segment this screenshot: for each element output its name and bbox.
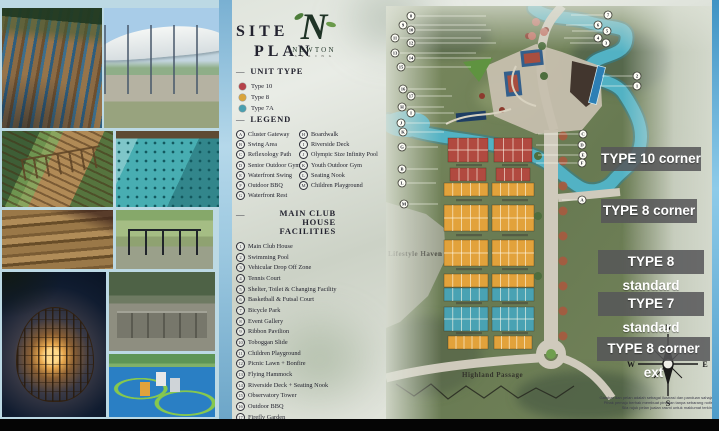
photo-outdoor-gym [116, 210, 213, 269]
facility-item: 9Ribbon Pavilion [236, 327, 336, 338]
facilities-section: — MAIN CLUB HOUSE FACILITIES 1Main Club … [236, 209, 336, 423]
facility-number-circle: 3 [236, 263, 245, 272]
callout-label: G [400, 145, 404, 150]
facility-item: 5Shelter, Toilet & Changing Facility [236, 284, 336, 295]
facility-number-circle: 1 [236, 242, 245, 251]
photo-sunken-lounge [109, 272, 215, 351]
legend-item: IRiverside Deck [299, 139, 391, 149]
callout-label: L [400, 181, 403, 186]
legend-key-circle: M [299, 181, 308, 190]
callout-label: H [400, 105, 404, 110]
callout-label: 14 [409, 56, 414, 61]
legend-key-circle: E [236, 171, 245, 180]
callout-label: 10 [409, 28, 414, 33]
photo-collage-panel [0, 0, 219, 419]
facility-item: 8Event Gallery [236, 316, 336, 327]
legend-column-left: ACluster GatewayBSwing AreaCReflexology … [236, 129, 299, 201]
lot-block-teal [492, 288, 534, 301]
legend-key-circle: D [236, 161, 245, 170]
unit-type-item: Type 8 [239, 92, 303, 103]
legend-item: KYouth Outdoor Gym [299, 160, 391, 170]
unit-type-section: —UNIT TYPE Type 10Type 8Type 7A [236, 66, 303, 114]
facility-number-circle: 13 [236, 370, 245, 379]
unit-type-color-dot [239, 83, 246, 90]
facility-item: 4Tennis Court [236, 273, 336, 284]
facility-label: Tennis Court [248, 275, 281, 282]
unit-type-item: Type 7A [239, 103, 303, 114]
unit-type-label: Type 10 [251, 83, 272, 90]
unit-type-color-dot [239, 94, 246, 101]
type-label: TYPE 7 standard [598, 292, 704, 316]
disclaimer-text: Gambar dan pelan adalah sebagai ilustras… [596, 395, 714, 410]
legend-item: GWaterfront Rest [236, 191, 299, 201]
playground-equipment-shape [156, 372, 166, 386]
legend-key-circle: I [299, 140, 308, 149]
photo-canopy-walkway [104, 8, 220, 128]
facility-item: 16Outdoor BBQ [236, 401, 336, 412]
legend-label: Youth Outdoor Gym [311, 162, 362, 169]
facilities-header-line1: MAIN CLUB HOUSE [264, 209, 336, 227]
legend-label: Riverside Deck [311, 141, 349, 148]
photo-wavy-deck-loungers [2, 8, 102, 128]
callout-label: 11 [393, 36, 398, 41]
facility-label: Basketball & Futsal Court [248, 296, 314, 303]
facility-label: Children Playground [248, 350, 301, 357]
type-label: TYPE 8 corner [601, 199, 697, 223]
facility-number-circle: 9 [236, 327, 245, 336]
legend-label: Swing Area [248, 141, 277, 148]
unit-type-header-label: UNIT TYPE [250, 66, 303, 76]
deck-shadow-shape [2, 74, 102, 128]
facility-number-circle: 7 [236, 306, 245, 315]
legend-section: —LEGEND ACluster GatewayBSwing AreaCRefl… [236, 114, 391, 201]
callout-label: F [581, 161, 584, 166]
unit-type-list: Type 10Type 8Type 7A [236, 81, 303, 114]
gym-frame-shape [128, 229, 202, 256]
legend-key-circle: A [236, 130, 245, 139]
photo-terraced-steps [2, 210, 113, 269]
facility-number-circle: 8 [236, 317, 245, 326]
canopy-posts-shape [104, 25, 220, 95]
bottom-letterbox-bar [0, 419, 719, 431]
facility-item: 2Swimming Pool [236, 252, 336, 263]
collage-divider-band [219, 0, 232, 419]
legend-key-circle: B [236, 140, 245, 149]
cocoon-cage-shape [16, 307, 95, 402]
legend-item: JOlympic Size Infinity Pool [299, 150, 391, 160]
legend-item: DSenior Outdoor Gym [236, 160, 299, 170]
facility-item: 1Main Club House [236, 241, 336, 252]
legend-label: Outdoor BBQ [248, 182, 283, 189]
type-label: TYPE 8 standard [598, 250, 704, 274]
callout-label: M [402, 202, 407, 207]
legend-key-circle: L [299, 171, 308, 180]
facility-number-circle: 15 [236, 391, 245, 400]
disclaimer-line: Sila rujuk pelan jualan rasmi untuk makl… [596, 405, 714, 410]
legend-label: Olympic Size Infinity Pool [311, 151, 378, 158]
legend-key-circle: G [236, 191, 245, 200]
facility-number-circle: 5 [236, 285, 245, 294]
legend-item: EWaterfront Swing [236, 170, 299, 180]
facility-label: Shelter, Toilet & Changing Facility [248, 286, 337, 293]
facility-number-circle: 16 [236, 402, 245, 411]
unit-type-label: Type 7A [251, 105, 274, 112]
dash-decoration: — [236, 209, 245, 236]
fog-overlay-left [386, 6, 442, 420]
facility-item: 13Flying Hammock [236, 369, 336, 380]
legend-item: LSeating Nook [299, 170, 391, 180]
facility-label: Vehicular Drop Off Zone [248, 264, 311, 271]
legend-item: FOutdoor BBQ [236, 180, 299, 190]
legend-item: HBoardwalk [299, 129, 391, 139]
callout-label: 13 [393, 51, 398, 56]
facilities-header: MAIN CLUB HOUSE FACILITIES [264, 209, 336, 236]
facility-item: 7Bicycle Park [236, 305, 336, 316]
facility-label: Riverside Deck + Seating Nook [248, 382, 328, 389]
tree-shadow-shape [2, 210, 113, 269]
legend-label: Waterfront Swing [248, 172, 292, 179]
photo-reflexology-path [116, 131, 220, 207]
facility-label: Event Gallery [248, 318, 283, 325]
highland-passage-label: Highland Passage [462, 371, 523, 379]
roundabout-center [546, 349, 556, 359]
legend-item: MChildren Playground [299, 180, 391, 190]
legend-item: BSwing Area [236, 139, 299, 149]
legend-label: Senior Outdoor Gym [248, 162, 300, 169]
legend-columns: ACluster GatewayBSwing AreaCReflexology … [236, 129, 391, 201]
lot-block-yellow [492, 274, 534, 287]
lounge-bench-shape [117, 311, 206, 338]
dash-decoration: — [236, 66, 245, 76]
facility-label: Observatory Tower [248, 392, 297, 399]
callout-label: 16 [401, 87, 406, 92]
facility-item: 3Vehicular Drop Off Zone [236, 262, 336, 273]
facility-number-circle: 12 [236, 359, 245, 368]
facility-number-circle: 10 [236, 338, 245, 347]
photo-cocoon-pavilion-night [2, 272, 106, 417]
type-label: TYPE 8 corner ext [597, 337, 710, 361]
legend-key-circle: J [299, 150, 308, 159]
facility-item: 12Picnic Lawn + Bonfire [236, 359, 336, 370]
lot-block-teal [444, 288, 488, 301]
facility-label: Bicycle Park [248, 307, 280, 314]
callout-label: K [401, 130, 405, 135]
facility-label: Swimming Pool [248, 254, 289, 261]
callout-label: E [581, 153, 584, 158]
legend-label: Seating Nook [311, 172, 345, 179]
facility-item: 11Children Playground [236, 348, 336, 359]
lot-block-yellow [448, 336, 488, 349]
callout-label: I [410, 111, 412, 116]
legend-item: CReflexology Path [236, 150, 299, 160]
legend-key-circle: K [299, 161, 308, 170]
unit-type-color-dot [239, 105, 246, 112]
unit-type-header: —UNIT TYPE [236, 66, 303, 76]
callout-label: 12 [409, 41, 414, 46]
facilities-list: 1Main Club House2Swimming Pool3Vehicular… [236, 241, 336, 423]
compass-e-label: E [702, 360, 707, 369]
legend-label: Waterfront Rest [248, 192, 287, 199]
lot-block-yellow [494, 336, 532, 349]
facility-number-circle: 4 [236, 274, 245, 283]
legend-key-circle: H [299, 130, 308, 139]
logo-name: NEWTON [288, 46, 340, 54]
facility-item: 6Basketball & Futsal Court [236, 294, 336, 305]
legend-key-circle: C [236, 150, 245, 159]
unit-type-item: Type 10 [239, 81, 303, 92]
unit-type-label: Type 8 [251, 94, 269, 101]
photo-boardwalk-bridge [2, 131, 113, 207]
main-road [544, 130, 558, 354]
callout-label: 15 [399, 65, 404, 70]
newton-logo: N NEWTON S P R I N G [288, 8, 340, 58]
facility-item: 14Riverside Deck + Seating Nook [236, 380, 336, 391]
facility-label: Toboggan Slide [248, 339, 288, 346]
callout-label: C [581, 132, 584, 137]
facilities-header-line2: FACILITIES [264, 227, 336, 236]
facility-number-circle: 11 [236, 349, 245, 358]
fog-overlay-top [386, 6, 716, 52]
facility-label: Flying Hammock [248, 371, 292, 378]
facility-number-circle: 14 [236, 381, 245, 390]
legend-column-right: HBoardwalkIRiverside DeckJOlympic Size I… [299, 129, 391, 201]
lot-block-yellow [492, 183, 534, 196]
facility-item: 15Observatory Tower [236, 391, 336, 402]
legend-label: Reflexology Path [248, 151, 291, 158]
legend-item: ACluster Gateway [236, 129, 299, 139]
legend-header: —LEGEND [236, 114, 391, 124]
dash-decoration: — [236, 114, 245, 124]
compass-w-label: W [627, 360, 635, 369]
type-label: TYPE 10 corner [601, 147, 701, 171]
lot-block-yellow [444, 274, 488, 287]
callout-label: B [400, 167, 403, 172]
legend-label: Cluster Gateway [248, 131, 289, 138]
photo-water-playground [109, 354, 215, 417]
facility-number-circle: 6 [236, 295, 245, 304]
facility-number-circle: 2 [236, 253, 245, 262]
legend-label: Boardwalk [311, 131, 338, 138]
right-edge-band [712, 0, 719, 419]
facility-label: Outdoor BBQ [248, 403, 284, 410]
facility-label: Main Club House [248, 243, 293, 250]
legend-key-circle: F [236, 181, 245, 190]
legend-header-label: LEGEND [250, 114, 291, 124]
facility-label: Ribbon Pavilion [248, 328, 289, 335]
callout-label: 17 [409, 94, 414, 99]
lot-block-yellow [444, 183, 488, 196]
facility-item: 10Toboggan Slide [236, 337, 336, 348]
legend-label: Children Playground [311, 182, 363, 189]
logo-tagline: S P R I N G [288, 54, 340, 58]
facility-label: Picnic Lawn + Bonfire [248, 360, 306, 367]
